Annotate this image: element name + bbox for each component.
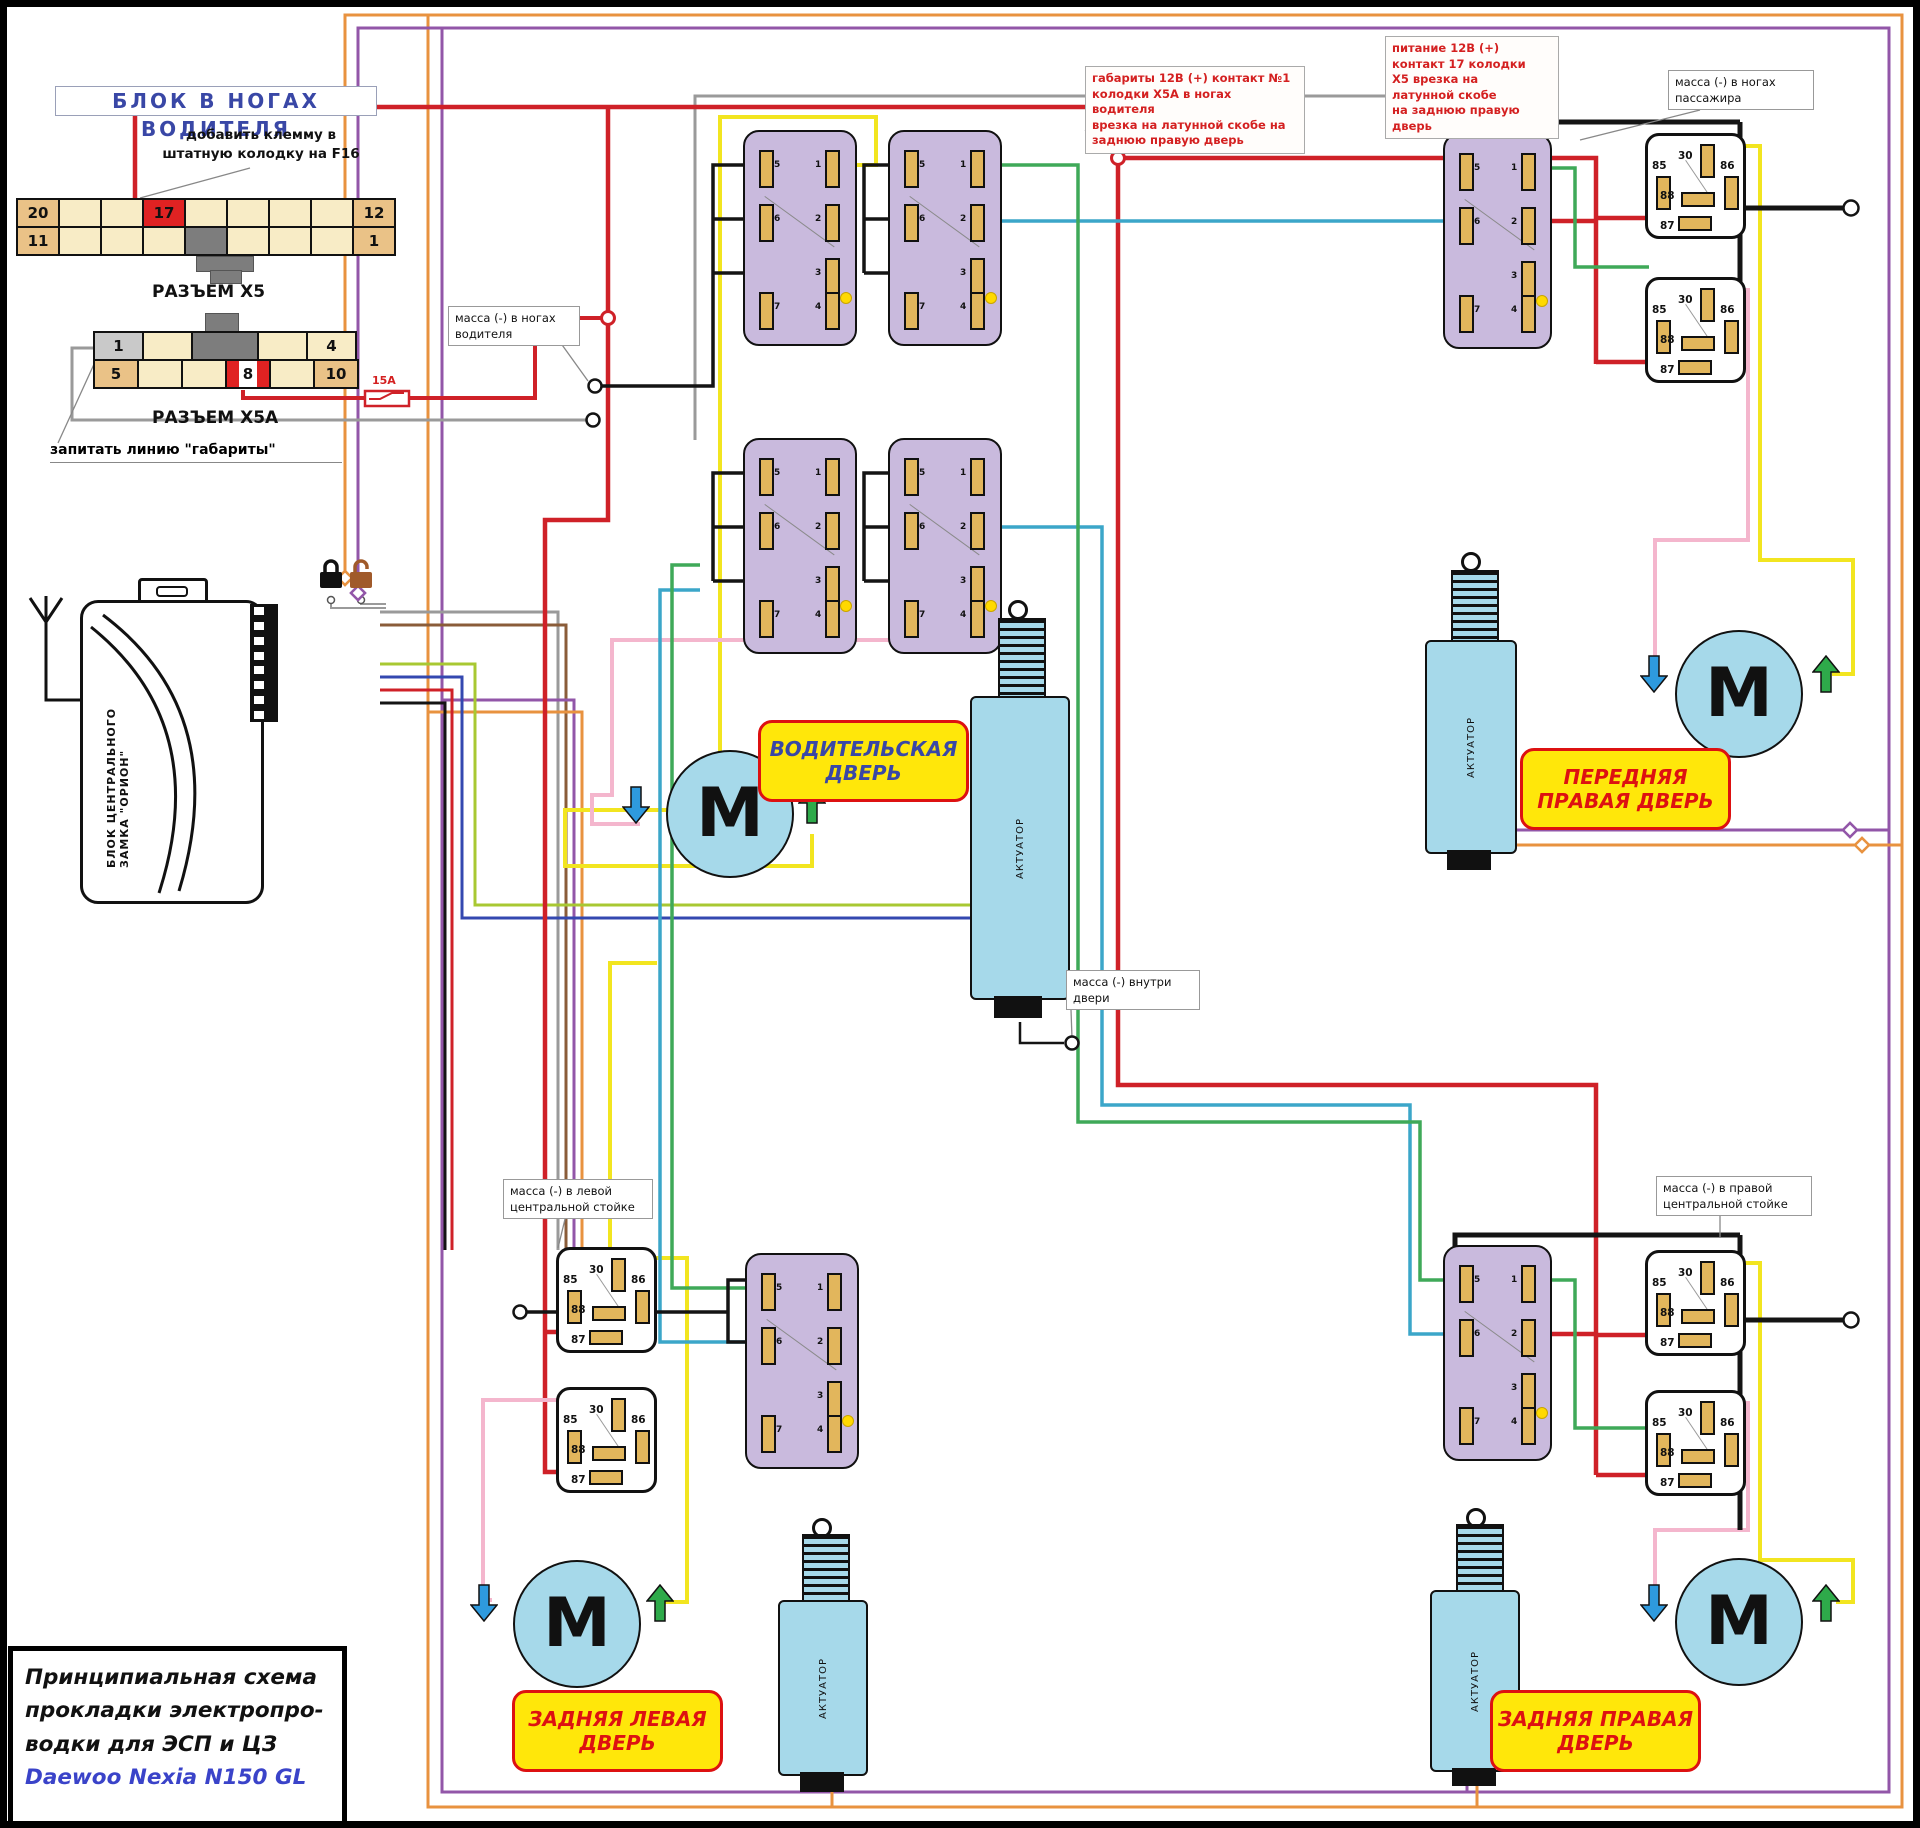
mass-driver-footwell: масса (-) в ногах водителя [448, 306, 580, 346]
pin [761, 1415, 776, 1453]
pin [825, 600, 840, 638]
note-power-splice: питание 12В (+) контакт 17 колодки Х5 вр… [1385, 36, 1559, 139]
x5a-cell-1: 1 [93, 331, 144, 361]
relay: 30 85 86 88 87 [1645, 1250, 1746, 1356]
pin [827, 1327, 842, 1365]
note-feed-gabarity: запитать линию "габариты" [50, 442, 342, 463]
pin-87 [589, 1330, 623, 1345]
x5-cell: 1 [352, 226, 396, 256]
pin-86 [635, 1290, 650, 1324]
actuator-label: АКТУАТОР [818, 1658, 829, 1719]
pin [970, 258, 985, 296]
x5a-key [191, 331, 259, 361]
pin [825, 458, 840, 496]
title-line: Принципиальная схема [25, 1661, 330, 1694]
x5a-cell-8: 8 [225, 359, 271, 389]
x5-cell [58, 226, 102, 256]
pin-87 [1678, 360, 1712, 375]
relay: 30 85 86 88 87 [1645, 133, 1746, 239]
window-switch-block: 5 6 7 1 2 3 4 [1443, 1245, 1552, 1461]
mass-right-pillar: масса (-) в правой центральной стойке [1656, 1176, 1812, 1216]
window-switch-block: 5 6 7 1 2 3 4 [743, 438, 857, 654]
door-lock-actuator: АКТУАТОР [778, 1518, 878, 1794]
x5-cell [100, 226, 144, 256]
title-block: Принципиальная схема прокладки электропр… [8, 1646, 347, 1828]
pin [761, 1273, 776, 1311]
pin [970, 150, 985, 188]
note-add-terminal-f16: добавить клемму в штатную колодку на F16 [145, 126, 377, 164]
x5-cell [184, 226, 228, 256]
pin [1459, 207, 1474, 245]
mass-passenger-footwell: масса (-) в ногах пассажира [1668, 70, 1814, 110]
pin [759, 150, 774, 188]
x5a-label: РАЗЪЕМ X5A [152, 408, 278, 428]
up-arrow-icon [1812, 655, 1840, 693]
pin [825, 204, 840, 242]
pin-30 [611, 1258, 626, 1292]
pin [970, 204, 985, 242]
lock-closed-icon [320, 561, 342, 588]
pin [970, 512, 985, 550]
connector-x5a: 1 4 5 8 10 [95, 331, 359, 389]
pin-86 [1724, 1433, 1739, 1467]
x5-cell [58, 198, 102, 228]
central-lock-unit: БЛОК ЦЕНТРАЛЬНОГО ЗАМКА "ОРИОН" [80, 578, 280, 908]
pin [825, 292, 840, 330]
illumination-bulb-icon [840, 292, 852, 304]
pin-30 [611, 1398, 626, 1432]
pin-87 [589, 1470, 623, 1485]
pin [1459, 153, 1474, 191]
pin [825, 258, 840, 296]
x5a-cell [137, 359, 183, 389]
x5-cell [184, 198, 228, 228]
x5a-cell: 5 [93, 359, 139, 389]
pin [759, 292, 774, 330]
x5-cell: 20 [16, 198, 60, 228]
pin [1521, 1319, 1536, 1357]
mass-left-pillar: масса (-) в левой центральной стойке [503, 1179, 653, 1219]
relay: 30 85 86 88 87 [556, 1387, 657, 1493]
label-rear-right-door: ЗАДНЯЯ ПРАВАЯ ДВЕРЬ [1490, 1690, 1701, 1772]
x5a-cell: 4 [306, 331, 357, 361]
x5-cell [310, 226, 354, 256]
x5-cell: 11 [16, 226, 60, 256]
window-motor: M [513, 1560, 641, 1688]
x5-cell [100, 198, 144, 228]
pin-30 [1700, 1261, 1715, 1295]
pin [1521, 1407, 1536, 1445]
pin [1521, 295, 1536, 333]
pin-88 [1681, 1309, 1715, 1324]
pin [827, 1381, 842, 1419]
driver-footwell-block-title: БЛОК В НОГАХ ВОДИТЕЛЯ [55, 86, 377, 116]
pin-87 [1678, 216, 1712, 231]
pin [1459, 295, 1474, 333]
pin-87 [1678, 1473, 1712, 1488]
actuator-label: АКТУАТОР [1470, 1651, 1481, 1712]
pin [759, 204, 774, 242]
x5-cell [142, 226, 186, 256]
title-line: прокладки электропро- [25, 1694, 330, 1727]
x5-cell [268, 198, 312, 228]
x5a-cell [257, 331, 308, 361]
illumination-bulb-icon [1536, 295, 1548, 307]
pin [1521, 207, 1536, 245]
pin [904, 150, 919, 188]
pin [904, 512, 919, 550]
pin [761, 1327, 776, 1365]
mass-inside-door: масса (-) внутри двери [1066, 970, 1200, 1010]
pin [1459, 1319, 1474, 1357]
x5-cell [310, 198, 354, 228]
actuator-label: АКТУАТОР [1466, 717, 1477, 778]
pin [759, 600, 774, 638]
note-gabarity-splice: габариты 12В (+) контакт №1 колодки Х5А … [1085, 66, 1305, 154]
pin [759, 512, 774, 550]
pin [904, 204, 919, 242]
alarm-connector [250, 604, 278, 722]
wiring-diagram-page: БЛОК В НОГАХ ВОДИТЕЛЯ добавить клемму в … [0, 0, 1920, 1828]
illumination-bulb-icon [840, 600, 852, 612]
down-arrow-icon [1640, 655, 1668, 693]
actuator-label: АКТУАТОР [1015, 818, 1026, 879]
pin [1459, 1265, 1474, 1303]
illumination-bulb-icon [842, 1415, 854, 1427]
pin-87 [1678, 1333, 1712, 1348]
lock-open-icon [350, 561, 372, 588]
pin-86 [1724, 320, 1739, 354]
pin [970, 566, 985, 604]
pin-88 [592, 1306, 626, 1321]
x5-cell-17: 17 [142, 198, 186, 228]
window-switch-block: 5 6 7 1 2 3 4 [745, 1253, 859, 1469]
relay: 30 85 86 88 87 [1645, 1390, 1746, 1496]
pin [1521, 1373, 1536, 1411]
label-front-right-door: ПЕРЕДНЯЯ ПРАВАЯ ДВЕРЬ [1520, 748, 1731, 830]
up-arrow-icon [1812, 1584, 1840, 1622]
up-arrow-icon [646, 1584, 674, 1622]
pin [1521, 1265, 1536, 1303]
window-switch-block: 5 6 7 1 2 3 4 [888, 130, 1002, 346]
x5-cell [268, 226, 312, 256]
pin-86 [1724, 1293, 1739, 1327]
pin-30 [1700, 1401, 1715, 1435]
pin-88 [592, 1446, 626, 1461]
window-motor: M [1675, 630, 1803, 758]
window-switch-block: 5 6 7 1 2 3 4 [1443, 133, 1552, 349]
alarm-top-slot [156, 586, 188, 597]
label-rear-left-door: ЗАДНЯЯ ЛЕВАЯ ДВЕРЬ [512, 1690, 723, 1772]
pin [1459, 1407, 1474, 1445]
relay: 30 85 86 88 87 [556, 1247, 657, 1353]
alarm-body: БЛОК ЦЕНТРАЛЬНОГО ЗАМКА "ОРИОН" [80, 600, 264, 904]
pin [904, 458, 919, 496]
pin-88 [1681, 336, 1715, 351]
illumination-bulb-icon [1536, 1407, 1548, 1419]
title-car-model: Daewoo Nexia N150 GL [25, 1761, 330, 1794]
pin [1521, 153, 1536, 191]
pin-30 [1700, 288, 1715, 322]
title-line: водки для ЭСП и ЦЗ [25, 1728, 330, 1761]
pin [827, 1273, 842, 1311]
relay: 30 85 86 88 87 [1645, 277, 1746, 383]
pin [825, 566, 840, 604]
illumination-bulb-icon [985, 292, 997, 304]
pin [904, 600, 919, 638]
window-switch-block: 5 6 7 1 2 3 4 [743, 130, 857, 346]
pin-30 [1700, 144, 1715, 178]
down-arrow-icon [622, 786, 650, 824]
pin [970, 458, 985, 496]
pin [759, 458, 774, 496]
door-lock-actuator: АКТУАТОР [1425, 552, 1525, 872]
connector-x5: 20 17 12 11 1 [18, 198, 396, 256]
x5a-cell [181, 359, 227, 389]
label-driver-door: ВОДИТЕЛЬСКАЯ ДВЕРЬ [758, 720, 969, 802]
pin-88 [1681, 192, 1715, 207]
window-motor: M [1675, 1558, 1803, 1686]
fuse-label: 15A [372, 374, 396, 387]
pin-88 [1681, 1449, 1715, 1464]
pin [1521, 261, 1536, 299]
door-lock-actuator: АКТУАТОР [970, 600, 1090, 1030]
antenna-icon [30, 596, 80, 700]
down-arrow-icon [470, 1584, 498, 1622]
pin [970, 292, 985, 330]
pin [904, 292, 919, 330]
x5-cell [226, 226, 270, 256]
x5a-cell: 10 [313, 359, 359, 389]
x5-label: РАЗЪЕМ X5 [152, 282, 265, 302]
pin [825, 150, 840, 188]
pin-86 [1724, 176, 1739, 210]
down-arrow-icon [1640, 1584, 1668, 1622]
pin-86 [635, 1430, 650, 1464]
pin [825, 512, 840, 550]
x5a-cell [142, 331, 193, 361]
pin [827, 1415, 842, 1453]
x5-cell: 12 [352, 198, 396, 228]
alarm-label: БЛОК ЦЕНТРАЛЬНОГО ЗАМКА "ОРИОН" [105, 643, 131, 868]
x5a-cell [269, 359, 315, 389]
x5-cell [226, 198, 270, 228]
fuse-icon [365, 391, 409, 406]
